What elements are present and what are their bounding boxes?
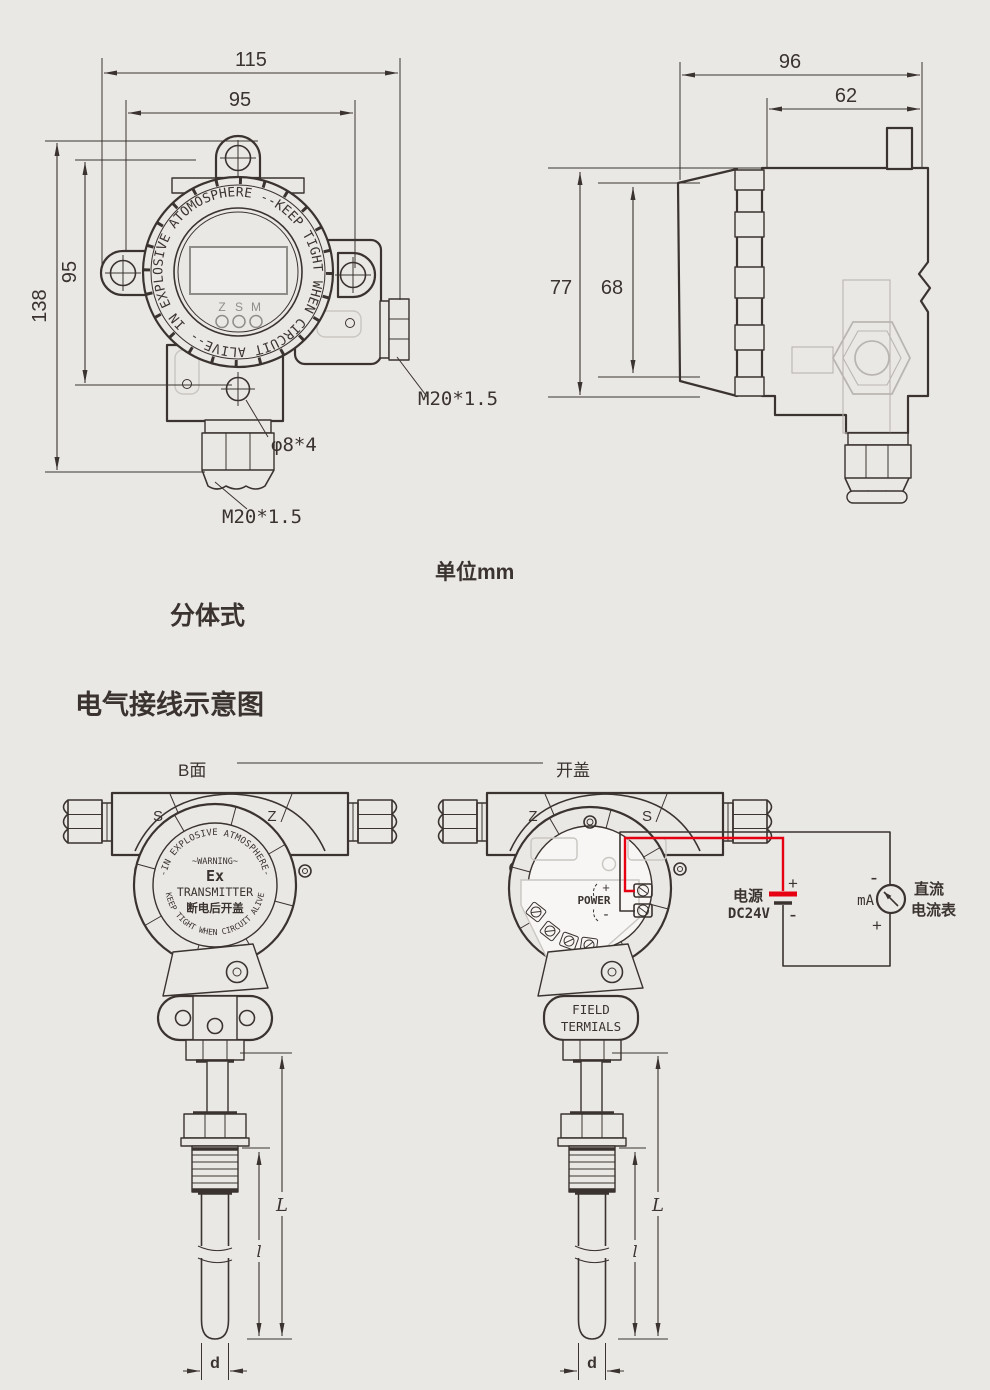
supply-label: 电源	[733, 887, 763, 905]
b-face-device: S Z -IN EXPLOSIVE ATMOSPHERE- KEEP TIGHT…	[64, 793, 397, 966]
technical-drawing: IN EXPLOSIVE ATOMOSPHERE --KEEP TIGHT WH…	[0, 0, 990, 1390]
open-cover-device: Z S	[439, 793, 772, 969]
supply-plus: +	[788, 874, 798, 893]
label-gland-thread: M20*1.5	[222, 506, 302, 528]
left-probe-assembly: L l d	[158, 944, 292, 1380]
dim-depth-overall: 96	[779, 51, 801, 73]
power-plus: +	[602, 880, 610, 895]
plate-line1: FIELD	[572, 1002, 610, 1017]
key-label-z: Z	[218, 300, 225, 314]
lcd-display	[190, 247, 287, 294]
side-view-drawing: 96 62 77 68	[548, 51, 930, 503]
label-b-face: B面	[178, 761, 206, 780]
mark-z-left: Z	[528, 808, 537, 825]
variant-label: 分体式	[170, 602, 245, 630]
dim-width-mount: 95	[229, 89, 251, 111]
front-view-drawing: IN EXPLOSIVE ATOMOSPHERE --KEEP TIGHT WH…	[29, 49, 498, 528]
cover-ex-mark: Ex	[206, 867, 224, 885]
dim-probe-immersion: l	[256, 1242, 261, 1261]
power-minus: -	[604, 906, 609, 923]
plate-line2: TERMIALS	[561, 1019, 621, 1034]
supply-value: DC24V	[728, 906, 771, 922]
label-open-cover: 开盖	[556, 761, 590, 780]
key-label-s: S	[235, 300, 243, 314]
label-conduit-thread: M20*1.5	[418, 388, 498, 410]
wiring-diagram: B面 开盖 S Z -IN EXPLOSIVE ATMOSPHERE- KEEP	[64, 761, 958, 1380]
meter-plus: +	[872, 916, 882, 935]
dim-height-overall: 138	[29, 289, 51, 322]
meter-label-1: 直流	[914, 880, 944, 898]
dim-height-mount: 95	[59, 261, 81, 283]
dim-probe-immersion-right: l	[632, 1242, 637, 1261]
dim-width-overall: 115	[235, 49, 267, 71]
dim-probe-diameter: d	[210, 1355, 220, 1372]
meter-minus: -	[871, 867, 878, 889]
front-bottom-gland	[202, 420, 274, 489]
dim-probe-diameter-right: d	[587, 1355, 597, 1372]
section-title: 电气接线示意图	[75, 689, 264, 720]
key-label-m: M	[251, 300, 261, 314]
cover-warning: ~WARNING~	[192, 857, 238, 867]
cover-caution-cn: 断电后开盖	[186, 901, 244, 915]
unit-note: 单位mm	[435, 560, 514, 584]
dim-probe-total: L	[275, 1195, 288, 1216]
label-mount-holes: φ8*4	[271, 434, 317, 456]
mark-s-right: S	[642, 808, 652, 825]
mark-z-right: Z	[267, 808, 276, 825]
dim-depth-body: 62	[835, 85, 857, 107]
meter-unit: mA	[857, 893, 874, 909]
dim-side-height-overall: 77	[550, 277, 572, 299]
side-bottom-gland	[845, 433, 911, 503]
mark-s-left: S	[153, 808, 163, 825]
cover-device-type: TRANSMITTER	[177, 885, 253, 899]
meter-label-2: 电流表	[911, 901, 957, 919]
supply-minus: -	[790, 904, 797, 926]
drawing-page: IN EXPLOSIVE ATOMOSPHERE --KEEP TIGHT WH…	[0, 0, 990, 1390]
right-probe-assembly: FIELD TERMIALS	[538, 944, 668, 1380]
dim-probe-total-right: L	[651, 1195, 664, 1216]
dim-side-height-cover: 68	[601, 277, 623, 299]
